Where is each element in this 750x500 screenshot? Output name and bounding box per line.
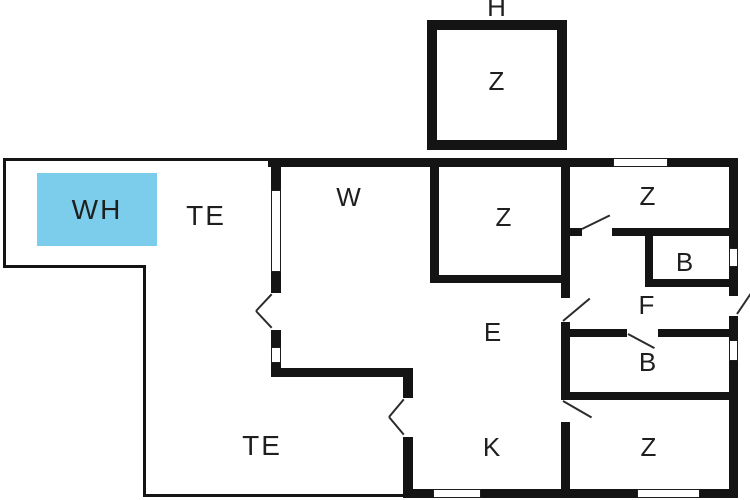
- wall-top-left-segment: [268, 158, 613, 167]
- room-label-highlight: WH: [72, 196, 123, 224]
- terrace-edge-left-upper: [3, 158, 6, 268]
- window-left-living: [271, 190, 281, 272]
- room-label-terrace-lower: TE: [222, 432, 302, 460]
- room-label-bedroom-bottom-right: Z: [619, 434, 679, 460]
- wall-right-segment-2: [729, 267, 738, 296]
- room-label-annex-room: Z: [467, 68, 527, 94]
- room-label-kitchen: K: [462, 434, 522, 460]
- window-right-bathroom-main: [729, 340, 738, 361]
- room-label-annex-title: H: [467, 0, 527, 20]
- wall-left-segment-1: [271, 158, 281, 190]
- highlight-box: WH: [37, 173, 157, 246]
- door-swing-exterior-right: [736, 293, 750, 315]
- room-label-terrace-upper: TE: [166, 202, 246, 230]
- terrace-edge-top: [3, 158, 270, 161]
- wall-hallway-bathroom-b: [658, 329, 729, 337]
- wall-right-segment-4: [729, 361, 738, 498]
- room-label-bedroom-middle: Z: [474, 204, 534, 230]
- room-label-entry: E: [463, 319, 523, 345]
- wall-hallway-bathroom-a: [561, 329, 627, 337]
- wall-step-horizontal: [271, 368, 413, 377]
- door-swing-terrace-lower-a: [388, 399, 404, 418]
- room-label-bedroom-top-right: Z: [618, 183, 678, 209]
- wall-bottom-segment-2: [481, 489, 637, 498]
- room-label-hallway: F: [617, 292, 677, 318]
- wall-bathroom-small-bottom: [645, 279, 729, 287]
- wall-top-right-segment: [668, 158, 738, 167]
- window-right-bathroom-small: [729, 248, 738, 267]
- terrace-edge-bottom: [143, 494, 406, 497]
- wall-central-segment-3: [561, 422, 570, 489]
- wall-living-bedroom: [430, 167, 439, 283]
- door-swing-terrace-lower-b: [388, 416, 404, 435]
- room-label-bathroom-small: B: [655, 249, 715, 275]
- door-swing-hallway: [562, 298, 590, 322]
- window-bottom-kitchen: [433, 489, 481, 498]
- wall-step-vertical-lower: [403, 437, 413, 498]
- wall-bedroom-tr-bottom-b: [612, 228, 729, 236]
- wall-bedroom-tr-bottom-a: [561, 228, 582, 236]
- wall-bedroom-middle-bottom: [430, 275, 570, 283]
- room-label-bathroom-main: B: [618, 349, 678, 375]
- wall-left-segment-3: [271, 330, 281, 347]
- room-label-living: W: [319, 184, 379, 210]
- door-swing-terrace-upper-a: [255, 293, 272, 311]
- door-swing-bedroom-top-right: [582, 215, 611, 230]
- wall-bathroom-bedroom: [561, 392, 729, 400]
- terrace-edge-step: [3, 265, 146, 268]
- wall-bottom-segment-3: [700, 489, 738, 498]
- window-left-small: [271, 347, 281, 363]
- door-swing-terrace-upper-b: [255, 310, 272, 328]
- terrace-edge-left-lower: [143, 265, 146, 497]
- wall-left-segment-2: [271, 272, 281, 293]
- floor-plan: H Z WH: [0, 0, 750, 500]
- door-swing-bedroom-bottom-right: [563, 400, 593, 418]
- wall-step-vertical-upper: [403, 368, 413, 398]
- window-top-bedroom: [613, 158, 668, 167]
- wall-right-segment-1: [729, 158, 738, 248]
- window-bottom-bedroom: [637, 489, 700, 498]
- wall-right-segment-3: [729, 316, 738, 340]
